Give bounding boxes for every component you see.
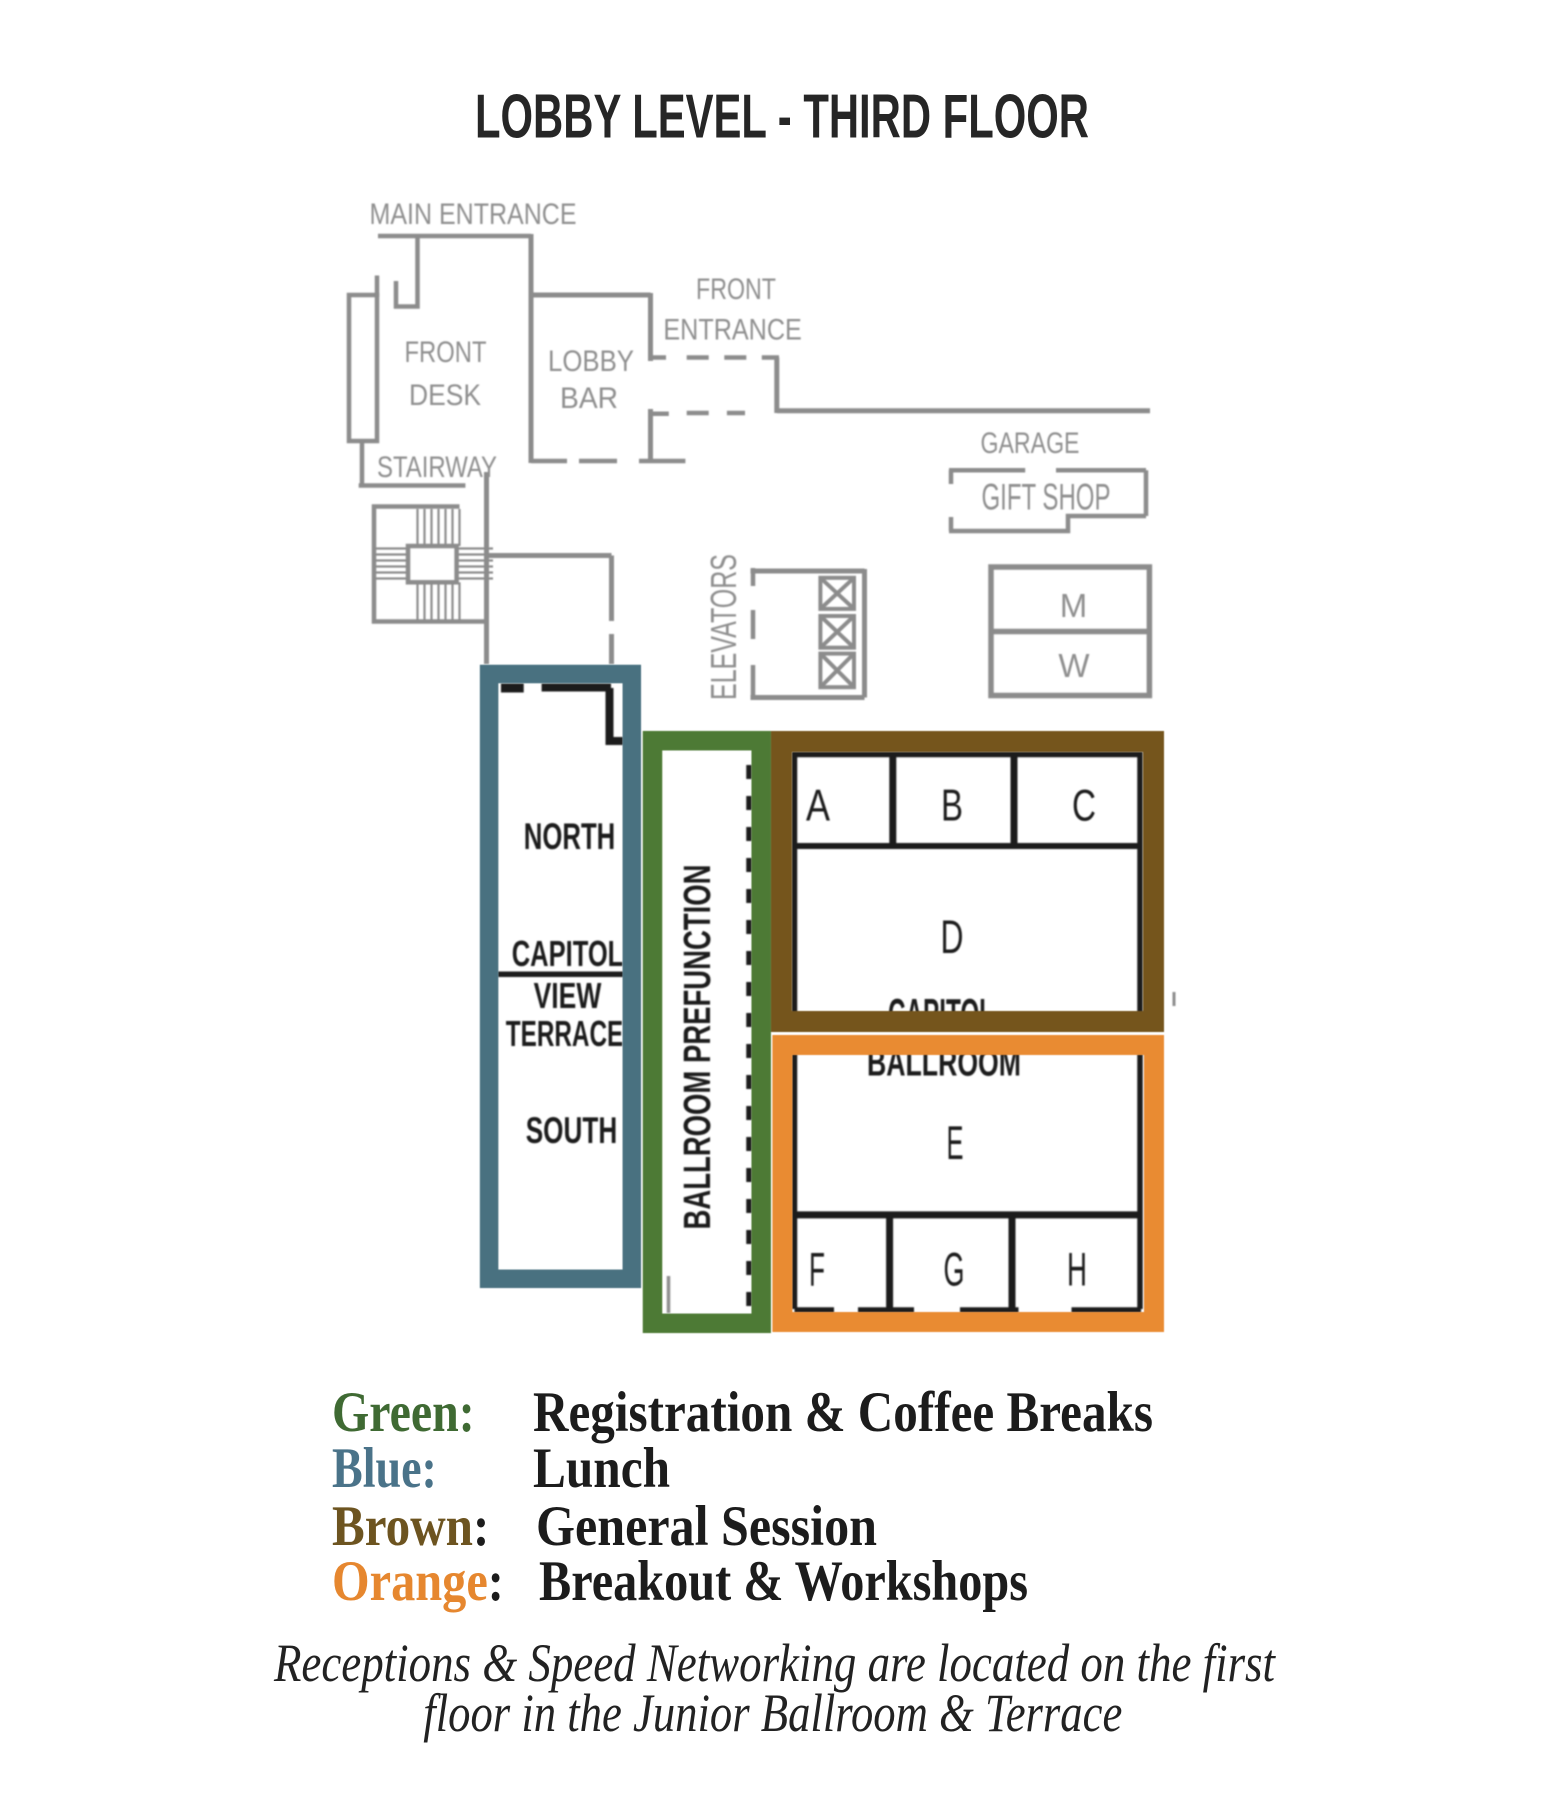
svg-text:General Session: General Session	[536, 1495, 877, 1558]
svg-text:C: C	[1072, 781, 1096, 830]
svg-text:CAPITOL: CAPITOL	[512, 933, 624, 974]
svg-text:D: D	[941, 910, 964, 963]
svg-text:BALLROOM PREFUNCTION: BALLROOM PREFUNCTION	[677, 865, 719, 1230]
svg-text:DESK: DESK	[409, 379, 481, 412]
svg-text:A: A	[806, 781, 830, 830]
svg-text:Green:: Green:	[332, 1381, 475, 1444]
svg-text:Orange:: Orange:	[332, 1550, 504, 1613]
svg-text:MAIN ENTRANCE: MAIN ENTRANCE	[370, 198, 577, 231]
svg-text:LOBBY: LOBBY	[548, 345, 634, 378]
svg-text:W: W	[1058, 647, 1090, 684]
svg-text:NORTH: NORTH	[524, 816, 616, 857]
svg-text:FRONT: FRONT	[405, 336, 487, 369]
svg-text:Blue:: Blue:	[332, 1437, 437, 1500]
svg-text:STAIRWAY: STAIRWAY	[377, 451, 497, 484]
svg-text:F: F	[809, 1243, 825, 1296]
svg-text:ENTRANCE: ENTRANCE	[663, 314, 802, 347]
svg-text:M: M	[1060, 587, 1088, 624]
svg-text:SOUTH: SOUTH	[526, 1110, 618, 1151]
svg-text:G: G	[944, 1243, 965, 1296]
svg-text:VIEW: VIEW	[534, 975, 602, 1016]
svg-text:BAR: BAR	[560, 382, 618, 415]
svg-text:TERRACE: TERRACE	[506, 1013, 623, 1054]
svg-text:LOBBY LEVEL - THIRD FLOOR: LOBBY LEVEL - THIRD FLOOR	[475, 83, 1089, 152]
svg-text:GARAGE: GARAGE	[981, 427, 1080, 460]
svg-text:FRONT: FRONT	[696, 273, 776, 306]
svg-text:floor in the Junior Ballroom &: floor in the Junior Ballroom & Terrace	[423, 1683, 1122, 1743]
svg-text:GIFT SHOP: GIFT SHOP	[982, 477, 1111, 518]
svg-text:E: E	[947, 1116, 964, 1169]
svg-text:B: B	[941, 781, 963, 830]
svg-text:Lunch: Lunch	[533, 1437, 670, 1500]
svg-text:H: H	[1067, 1243, 1087, 1296]
svg-text:ELEVATORS: ELEVATORS	[703, 554, 744, 700]
svg-text:Breakout & Workshops: Breakout & Workshops	[539, 1550, 1028, 1613]
svg-text:Registration & Coffee Breaks: Registration & Coffee Breaks	[533, 1381, 1153, 1444]
svg-text:Brown:: Brown:	[332, 1495, 489, 1558]
